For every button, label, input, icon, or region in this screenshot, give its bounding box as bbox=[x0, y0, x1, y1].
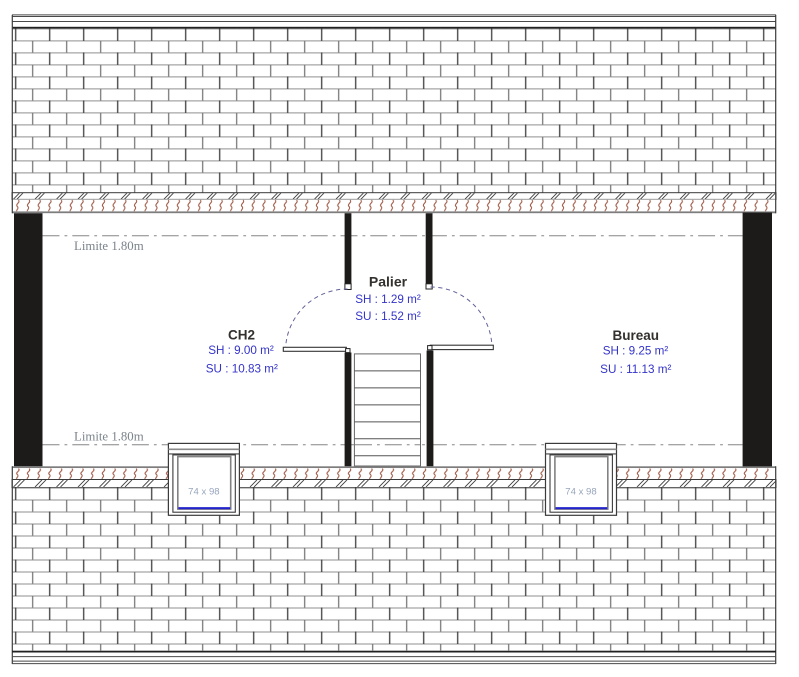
svg-text:SH : 9.00 m²: SH : 9.00 m² bbox=[208, 344, 274, 357]
svg-text:SU : 11.13 m²: SU : 11.13 m² bbox=[600, 363, 671, 376]
svg-text:Bureau: Bureau bbox=[613, 328, 660, 343]
svg-text:74 x 98: 74 x 98 bbox=[188, 486, 219, 497]
svg-text:SU : 1.52 m²: SU : 1.52 m² bbox=[355, 310, 421, 323]
svg-text:Palier: Palier bbox=[369, 274, 408, 290]
svg-text:SU : 10.83 m²: SU : 10.83 m² bbox=[206, 363, 278, 376]
svg-text:SH : 9.25 m²: SH : 9.25 m² bbox=[603, 345, 669, 358]
svg-text:74 x 98: 74 x 98 bbox=[565, 486, 596, 497]
svg-text:SH : 1.29 m²: SH : 1.29 m² bbox=[355, 293, 421, 306]
svg-text:Limite 1.80m: Limite 1.80m bbox=[74, 430, 144, 444]
svg-text:Limite 1.80m: Limite 1.80m bbox=[74, 239, 144, 253]
svg-text:CH2: CH2 bbox=[228, 328, 255, 343]
